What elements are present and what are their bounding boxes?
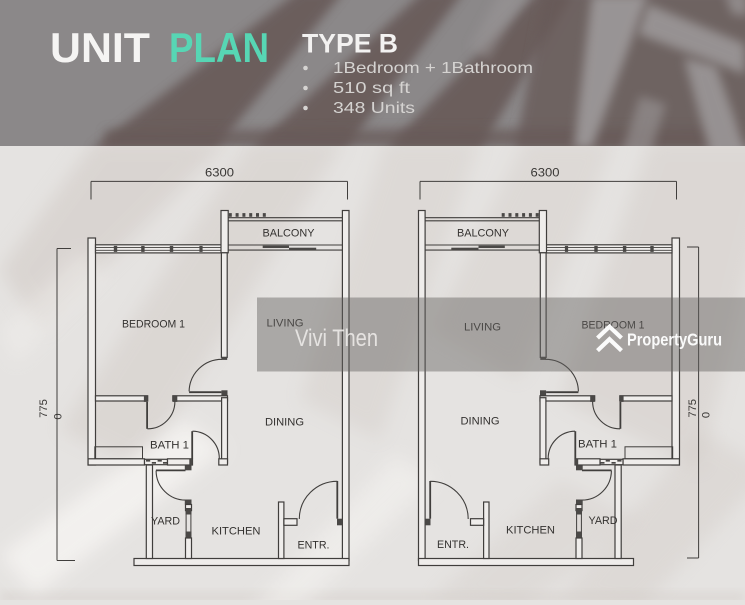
svg-text:DINING: DINING	[265, 417, 304, 429]
svg-text:KITCHEN: KITCHEN	[212, 526, 261, 538]
svg-text:UNIT: UNIT	[50, 24, 150, 71]
svg-text:775: 775	[687, 399, 699, 418]
svg-text:BATH 1: BATH 1	[578, 439, 617, 451]
svg-text:ENTR.: ENTR.	[298, 540, 330, 552]
svg-text:510 sq ft: 510 sq ft	[333, 80, 411, 97]
svg-text:BATH 1: BATH 1	[150, 440, 189, 452]
svg-text:BALCONY: BALCONY	[263, 227, 315, 239]
svg-text:BEDROOM 1: BEDROOM 1	[122, 318, 185, 330]
svg-text:6300: 6300	[531, 166, 560, 180]
svg-text:0: 0	[701, 412, 713, 418]
svg-text:0: 0	[53, 413, 65, 419]
svg-text:1Bedroom + 1Bathroom: 1Bedroom + 1Bathroom	[333, 60, 533, 77]
svg-text:Vivi Then: Vivi Then	[295, 325, 378, 352]
svg-text:KITCHEN: KITCHEN	[506, 525, 555, 537]
svg-text:ENTR.: ENTR.	[437, 539, 469, 551]
svg-text:6300: 6300	[205, 166, 234, 180]
svg-text:775: 775	[38, 399, 50, 418]
svg-text:YARD: YARD	[589, 515, 618, 527]
svg-text:348 Units: 348 Units	[333, 100, 415, 117]
svg-text:TYPE B: TYPE B	[302, 29, 398, 59]
svg-text:YARD: YARD	[151, 516, 180, 528]
svg-text:BALCONY: BALCONY	[457, 227, 509, 239]
svg-text:PLAN: PLAN	[169, 24, 269, 71]
svg-text:DINING: DINING	[461, 416, 500, 428]
svg-text:PropertyGuru: PropertyGuru	[627, 330, 722, 350]
